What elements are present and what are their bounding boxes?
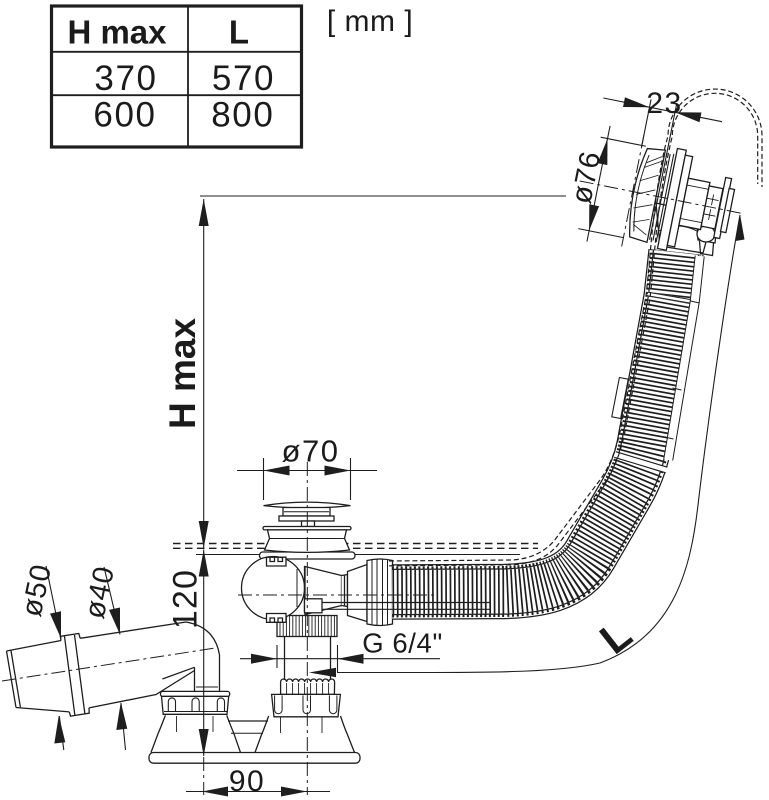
svg-text:L: L: [229, 14, 249, 51]
svg-text:[ mm ]: [ mm ]: [327, 5, 413, 38]
svg-text:ø70: ø70: [282, 434, 340, 469]
svg-text:G 6/4": G 6/4": [362, 628, 443, 659]
svg-text:120: 120: [167, 569, 205, 629]
svg-text:90: 90: [229, 765, 265, 798]
svg-text:600: 600: [93, 96, 156, 135]
svg-text:H max: H max: [67, 14, 167, 51]
svg-text:370: 370: [94, 59, 157, 98]
svg-text:570: 570: [212, 59, 275, 98]
svg-text:H max: H max: [162, 318, 203, 429]
svg-text:800: 800: [211, 96, 274, 135]
